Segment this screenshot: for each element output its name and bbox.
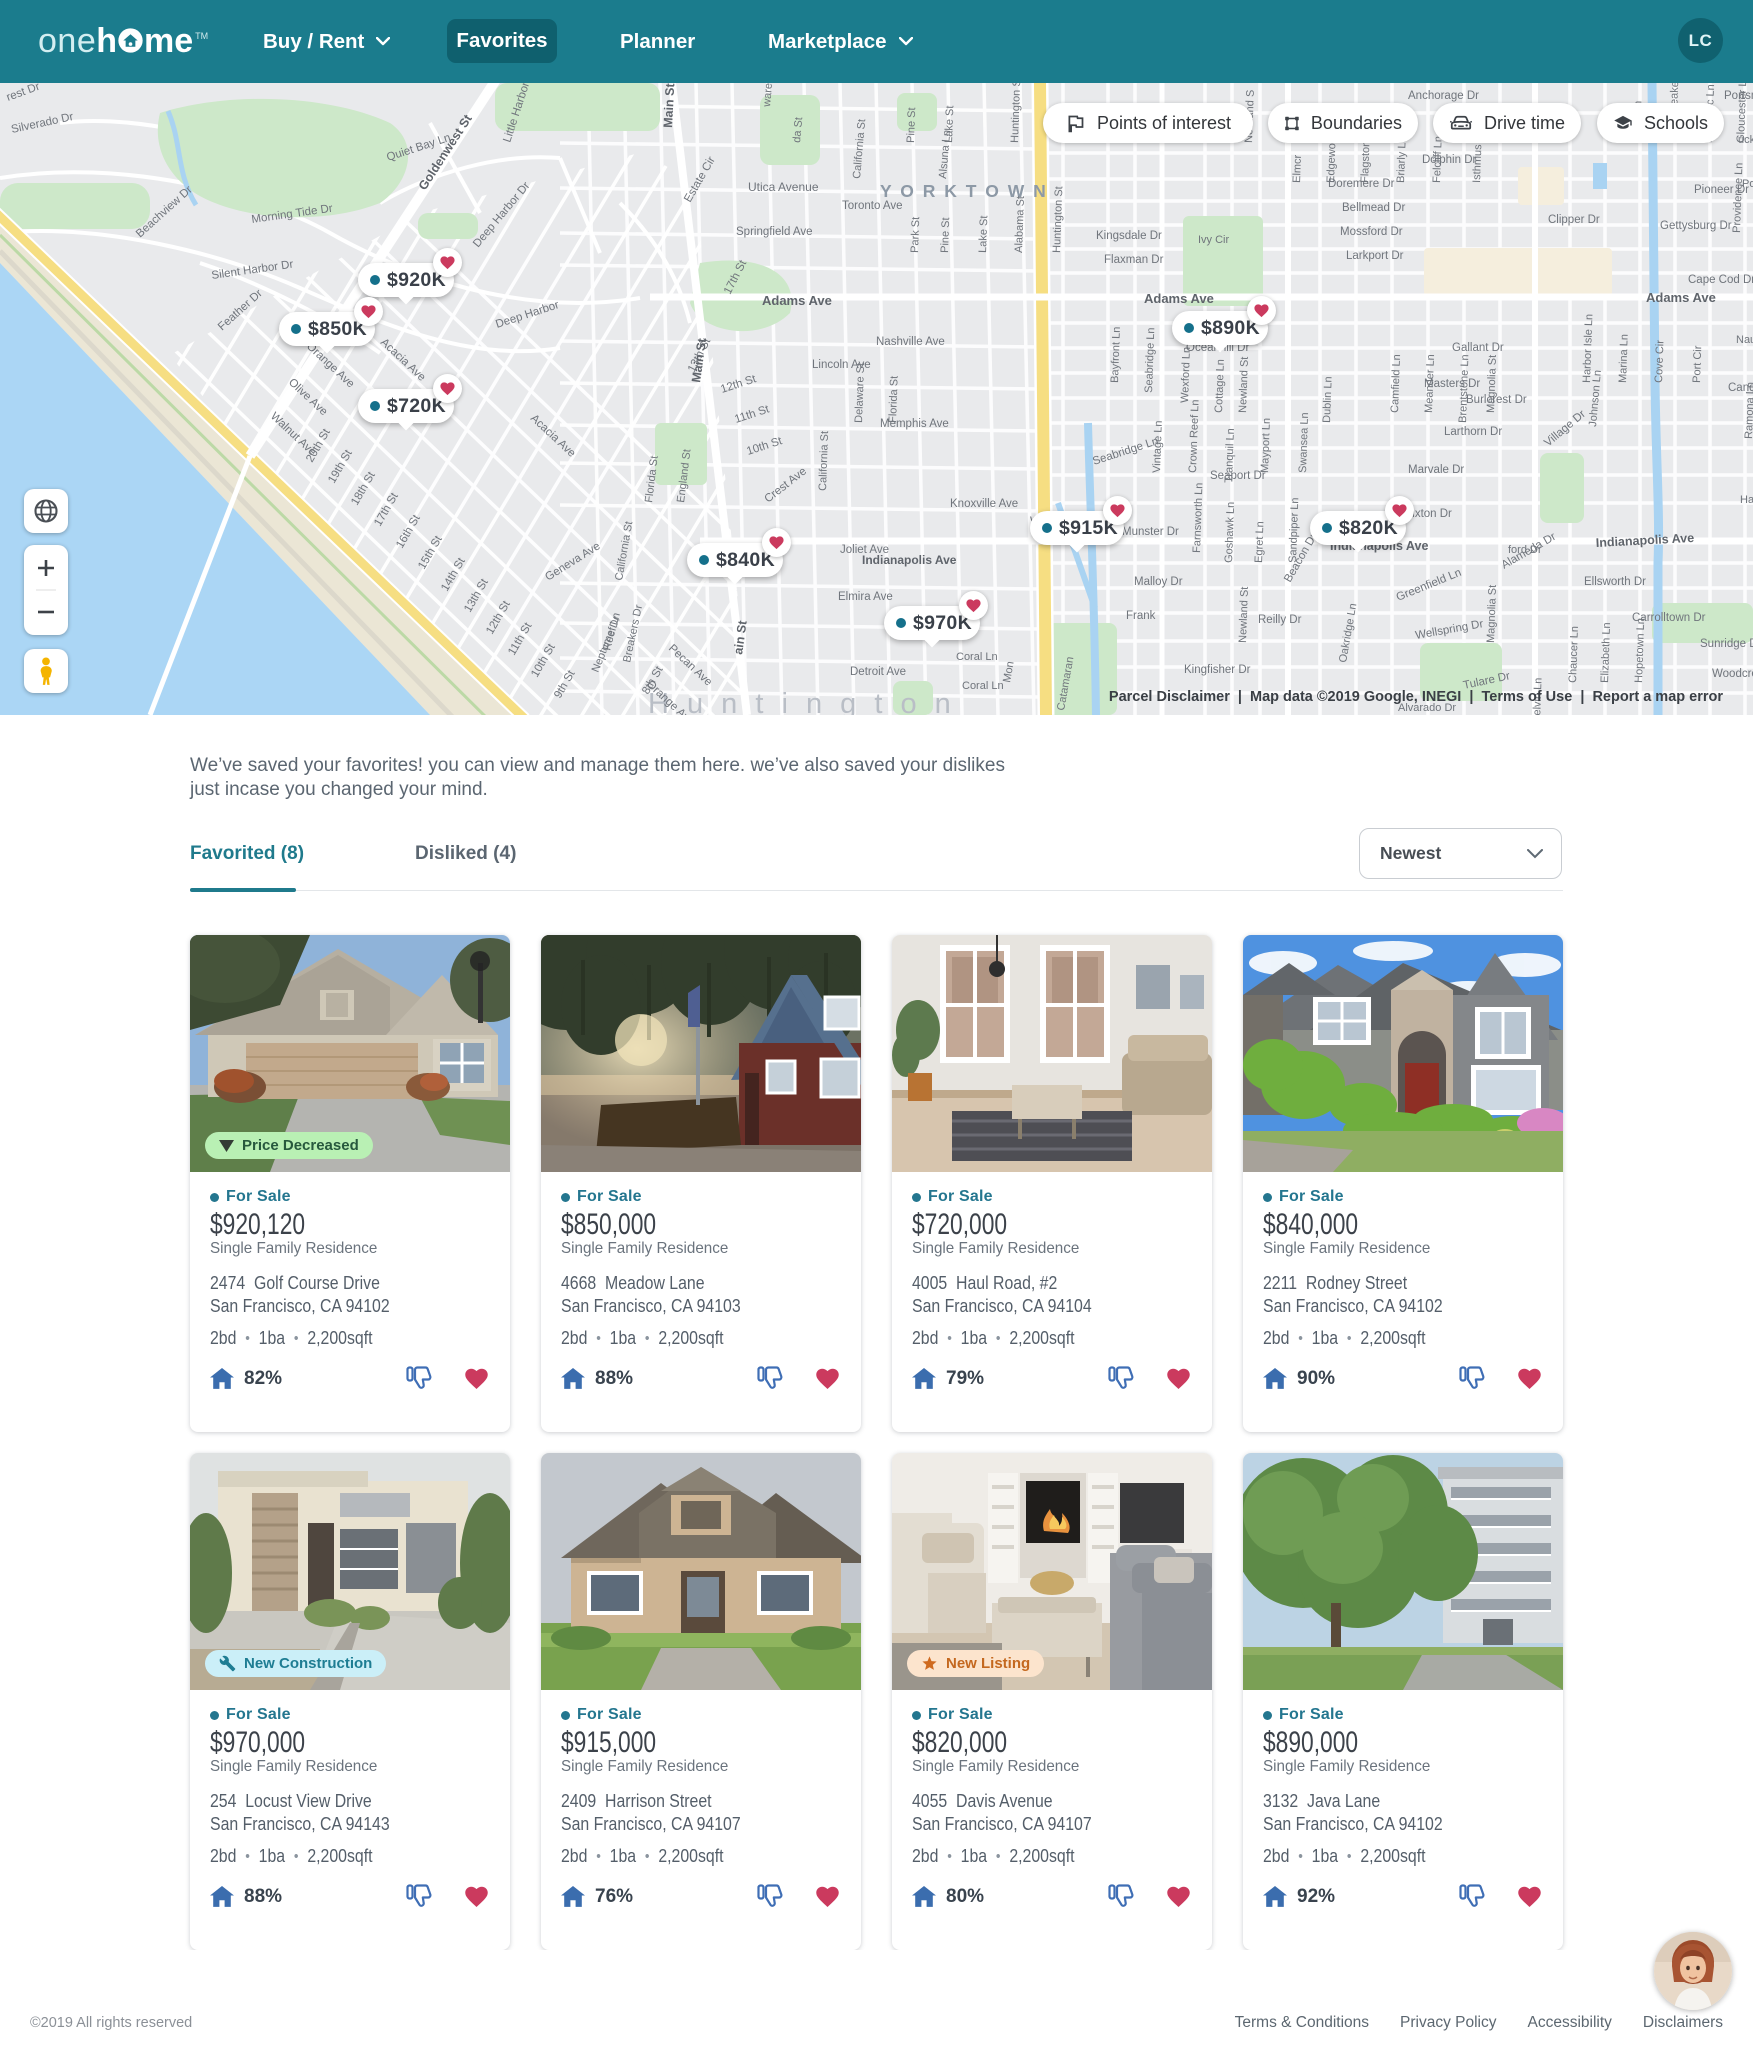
- svg-text:Magnolia St: Magnolia St: [1485, 585, 1499, 643]
- svg-text:Adams Ave: Adams Ave: [762, 293, 832, 308]
- svg-text:Newland St: Newland St: [1237, 586, 1251, 643]
- svg-text:Munster Dr: Munster Dr: [1122, 526, 1179, 538]
- svg-text:Joliet Ave: Joliet Ave: [840, 544, 889, 556]
- svg-text:da St: da St: [791, 117, 805, 144]
- svg-text:Masters Dr: Masters Dr: [1424, 378, 1480, 390]
- svg-text:Briarly Ln: Briarly Ln: [1395, 136, 1409, 183]
- svg-text:Ivy Cir: Ivy Cir: [1198, 234, 1230, 246]
- svg-text:Hopetown Ln: Hopetown Ln: [1633, 618, 1647, 683]
- svg-text:Portsmouth D: Portsmouth D: [1724, 90, 1753, 102]
- svg-text:Lake St: Lake St: [977, 215, 990, 253]
- svg-text:Seaport Dr: Seaport Dr: [1210, 470, 1266, 482]
- svg-text:Malloy Dr: Malloy Dr: [1134, 576, 1183, 588]
- svg-text:Elizabeth Ln: Elizabeth Ln: [1599, 622, 1613, 683]
- svg-text:Swansea Ln: Swansea Ln: [1297, 412, 1311, 473]
- svg-text:Adams Ave: Adams Ave: [1646, 290, 1716, 305]
- svg-text:Mayport Ln: Mayport Ln: [1259, 418, 1273, 473]
- svg-text:Egret Ln: Egret Ln: [1253, 521, 1266, 563]
- svg-text:Gallant Dr: Gallant Dr: [1452, 342, 1504, 354]
- svg-text:Coral Ln: Coral Ln: [956, 651, 998, 663]
- svg-text:Hazelbrook: Hazelbrook: [1740, 494, 1753, 506]
- svg-text:Anchorage Dr: Anchorage Dr: [1408, 90, 1479, 102]
- svg-text:Cove Cir: Cove Cir: [1653, 340, 1666, 384]
- svg-text:Park St: Park St: [909, 217, 922, 253]
- svg-text:Pine St: Pine St: [939, 217, 952, 253]
- svg-text:Coral Ln: Coral Ln: [962, 680, 1004, 692]
- svg-text:Huntington S: Huntington S: [1009, 83, 1023, 143]
- svg-text:Delaware St: Delaware St: [853, 363, 867, 423]
- svg-text:Bellmead Dr: Bellmead Dr: [1342, 202, 1405, 214]
- svg-text:Main St: Main St: [661, 83, 677, 128]
- svg-text:Sunridge Dr: Sunridge Dr: [1700, 638, 1753, 650]
- svg-text:Woodcrest Dr: Woodcrest Dr: [1712, 668, 1753, 680]
- svg-text:Flaxman Dr: Flaxman Dr: [1104, 254, 1164, 266]
- svg-text:Kingfisher Dr: Kingfisher Dr: [1184, 664, 1251, 676]
- svg-text:Detroit Ave: Detroit Ave: [850, 666, 906, 678]
- svg-text:Alabama St: Alabama St: [1013, 196, 1027, 253]
- svg-text:ucket: ucket: [1738, 134, 1753, 146]
- svg-text:Larkport Dr: Larkport Dr: [1346, 250, 1404, 262]
- svg-text:Providence Ln: Providence Ln: [1731, 162, 1745, 233]
- svg-text:Cottage Ln: Cottage Ln: [1213, 359, 1227, 413]
- svg-text:Cape Cod Dr: Cape Cod Dr: [1688, 274, 1753, 286]
- svg-text:Toronto Ave: Toronto Ave: [842, 200, 903, 212]
- svg-text:Wexford Ln: Wexford Ln: [1179, 347, 1193, 403]
- svg-text:Dublin Ln: Dublin Ln: [1321, 376, 1335, 423]
- svg-text:Knoxville Ave: Knoxville Ave: [950, 498, 1018, 510]
- svg-text:Goshawk Ln: Goshawk Ln: [1223, 502, 1237, 564]
- svg-text:Ramona Ln: Ramona Ln: [1743, 382, 1753, 439]
- svg-text:Nashville Ave: Nashville Ave: [876, 336, 945, 348]
- svg-text:Utica Avenue: Utica Avenue: [748, 180, 819, 194]
- svg-text:Newland St: Newland St: [1237, 356, 1251, 413]
- svg-text:Camfield Ln: Camfield Ln: [1389, 354, 1403, 413]
- svg-text:Crown Reef Ln: Crown Reef Ln: [1187, 399, 1202, 473]
- svg-text:Reilly Dr: Reilly Dr: [1258, 614, 1302, 626]
- svg-text:Seabridge Ln: Seabridge Ln: [1143, 327, 1157, 393]
- svg-text:California St: California St: [817, 431, 831, 491]
- svg-text:Carrolltown Dr: Carrolltown Dr: [1632, 612, 1706, 624]
- svg-text:Ellsworth Dr: Ellsworth Dr: [1584, 576, 1646, 588]
- svg-text:Springfield Ave: Springfield Ave: [736, 226, 813, 238]
- svg-text:Florida St: Florida St: [887, 376, 901, 423]
- svg-text:Dolphin Dr: Dolphin Dr: [1422, 154, 1476, 166]
- svg-text:Frank: Frank: [1126, 610, 1156, 622]
- svg-text:Bayfront Ln: Bayfront Ln: [1109, 326, 1123, 383]
- svg-text:Mossford Dr: Mossford Dr: [1340, 226, 1403, 238]
- svg-text:Huntington St: Huntington St: [1051, 186, 1065, 253]
- svg-text:Nautilus: Nautilus: [1736, 334, 1753, 346]
- svg-text:Burlcrest Dr: Burlcrest Dr: [1466, 394, 1527, 406]
- svg-text:Farnsworth Ln: Farnsworth Ln: [1191, 482, 1205, 553]
- svg-text:Doremere Dr: Doremere Dr: [1328, 178, 1395, 190]
- svg-text:H u n t i n g t o n: H u n t i n g t o n: [648, 688, 956, 715]
- svg-text:Chaucer Ln: Chaucer Ln: [1567, 626, 1581, 683]
- svg-text:Larthorn Dr: Larthorn Dr: [1444, 426, 1502, 438]
- svg-text:Elmira Ave: Elmira Ave: [838, 591, 893, 603]
- svg-text:Marina Ln: Marina Ln: [1617, 334, 1631, 383]
- svg-text:Marvale Dr: Marvale Dr: [1408, 464, 1464, 476]
- svg-text:Port Cir: Port Cir: [1691, 345, 1704, 383]
- svg-text:Adams Ave: Adams Ave: [1144, 291, 1214, 306]
- svg-text:Elmcr: Elmcr: [1291, 154, 1304, 183]
- svg-text:Gettysburg Dr: Gettysburg Dr: [1660, 220, 1732, 232]
- svg-text:Kingsdale Dr: Kingsdale Dr: [1096, 230, 1162, 242]
- svg-text:Clipper Dr: Clipper Dr: [1548, 214, 1600, 226]
- svg-text:Pine St: Pine St: [905, 107, 918, 143]
